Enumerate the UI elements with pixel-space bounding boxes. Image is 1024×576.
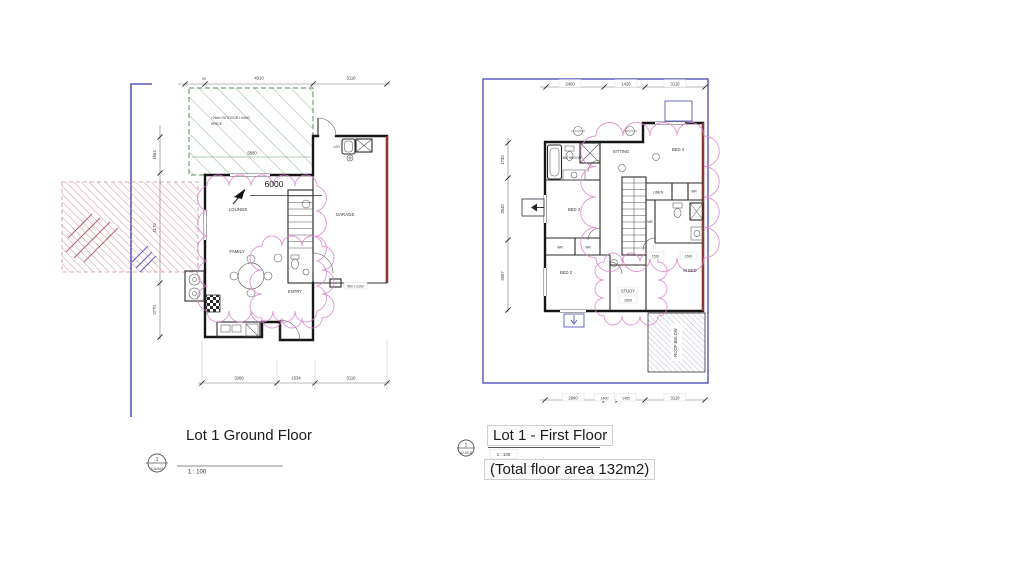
dim-label: 4170 xyxy=(152,223,157,233)
bathroom-fixtures xyxy=(548,143,601,180)
dim-label: 2640 xyxy=(500,204,505,214)
dining-table xyxy=(230,255,272,297)
outdoor-living-label-1: +26m² OUTDOOR LIVING xyxy=(211,116,250,120)
sink-right xyxy=(232,325,241,332)
tiled-area xyxy=(206,295,220,312)
first-stairs xyxy=(622,177,646,255)
first-dim-bottom: 2900 1400 1455 3110 xyxy=(540,394,708,403)
room-label-bed4: BED 4 xyxy=(672,147,685,152)
dim-label: 3110 xyxy=(670,82,680,87)
first-floor-plan: ROOF BELOW BATHROOM SITTING BED 4 BED 3 … xyxy=(457,79,719,459)
floor-plan-canvas: +26m² OUTDOOR LIVING SPACE 5800 xyxy=(0,0,1024,576)
room-label-wr: WR xyxy=(585,246,591,250)
room-label-entry: ENTRY xyxy=(288,289,302,294)
dim-label: 1730 xyxy=(500,155,505,165)
dim-label: 3110 xyxy=(346,376,356,381)
roof-below-label: ROOF BELOW xyxy=(673,328,678,356)
outdoor-dim-label: 5800 xyxy=(247,151,257,156)
tag-number: 1 xyxy=(465,443,468,449)
kitchen-fixtures xyxy=(185,271,260,337)
north-arrow xyxy=(233,189,245,204)
room-label-wr: WR xyxy=(647,220,653,224)
room-label-lounge: LOUNGE xyxy=(229,207,248,212)
dim-label: 4910 xyxy=(254,76,264,81)
ground-floor-title: Lot 1 Ground Floor xyxy=(163,427,335,444)
sink-left xyxy=(221,325,230,332)
roof-below-area: ROOF BELOW xyxy=(648,313,705,372)
room-label-family: FAMILY xyxy=(229,249,244,254)
dim-label: 1534 xyxy=(291,376,301,381)
dim-label: 1426 xyxy=(621,82,631,87)
room-label-wr: WR xyxy=(557,246,563,250)
scale-label: 1 : 100 xyxy=(188,470,207,476)
toilet-bowl xyxy=(674,209,681,218)
room-label-bed3: BED 3 xyxy=(568,207,581,212)
dim-label: 3266 xyxy=(234,376,244,381)
dim-label: 3110 xyxy=(346,76,356,81)
dim-label: 3110 xyxy=(670,396,680,401)
tag-number: 1 xyxy=(156,457,159,463)
first-floor-title: Lot 1 - First Floor xyxy=(487,425,613,446)
room-label-linen: LINEN xyxy=(653,191,664,195)
outdoor-living-label-2: SPACE xyxy=(211,122,223,126)
dim-label: 2900 xyxy=(568,396,578,401)
laundry-fixtures xyxy=(342,139,372,161)
cooktop xyxy=(185,271,204,301)
total-floor-area-note: (Total floor area 132m2) xyxy=(484,459,655,480)
room-label-sitting: SITTING xyxy=(613,149,630,154)
ground-title-tag: 1 S-A2001 1 : 100 xyxy=(146,454,283,476)
room-label-study: STUDY xyxy=(621,289,635,294)
drawing-sheet: +26m² OUTDOOR LIVING SPACE 5800 xyxy=(0,0,1024,576)
dim-label: 2770 xyxy=(152,305,157,315)
first-dim-left: 1730 2640 2667 xyxy=(500,138,511,313)
garage-door-note: 900 x 2100 xyxy=(347,285,363,289)
dim-label: 1400 xyxy=(601,397,609,401)
room-label-wr: WR xyxy=(691,190,697,194)
scale-label: 1 : 100 xyxy=(497,452,511,457)
bathtub xyxy=(548,145,562,179)
dim-label: 90 xyxy=(202,77,206,81)
toilet-tank xyxy=(291,255,299,259)
basin xyxy=(303,269,309,275)
room-label-mbed: M BED xyxy=(683,268,696,273)
ground-dim-bottom: 3266 1534 3110 xyxy=(198,340,390,390)
room-label-bed2: BED 2 xyxy=(560,270,573,275)
vanity-basin xyxy=(571,172,577,178)
vanity-basin xyxy=(694,231,700,237)
dim-label: 1455 xyxy=(622,397,630,401)
ensuite-fixtures xyxy=(673,203,703,240)
ceiling-dim-label: 6000 xyxy=(265,179,284,189)
outdoor-living-area: +26m² OUTDOOR LIVING SPACE 5800 xyxy=(189,88,313,175)
dim-label: 2667 xyxy=(500,271,505,281)
revision-cloud xyxy=(581,123,720,272)
opening-dim: 1600 xyxy=(685,255,693,259)
first-dim-top: 2400 1426 3110 xyxy=(540,80,708,90)
toilet-bowl xyxy=(292,259,299,269)
tag-sheet: S-A2001 xyxy=(151,467,164,471)
window-tag-box xyxy=(665,101,692,121)
dim-label: 2400 xyxy=(565,82,575,87)
opening-dim: 1600 xyxy=(624,299,632,303)
room-label-laundry: LDY xyxy=(334,145,342,149)
opening-dim: 1520 xyxy=(652,255,660,259)
ground-floor-plan: +26m² OUTDOOR LIVING SPACE 5800 xyxy=(62,73,390,476)
dim-label: 1664 xyxy=(152,150,157,160)
room-label-garage: GARAGE xyxy=(336,212,355,217)
tag-sheet: A2-02-A xyxy=(460,451,473,455)
room-label-bathroom: BATHROOM xyxy=(563,156,582,160)
driveway-hatch-area xyxy=(62,182,198,272)
ground-dim-top: 90 4910 3110 xyxy=(178,73,390,87)
